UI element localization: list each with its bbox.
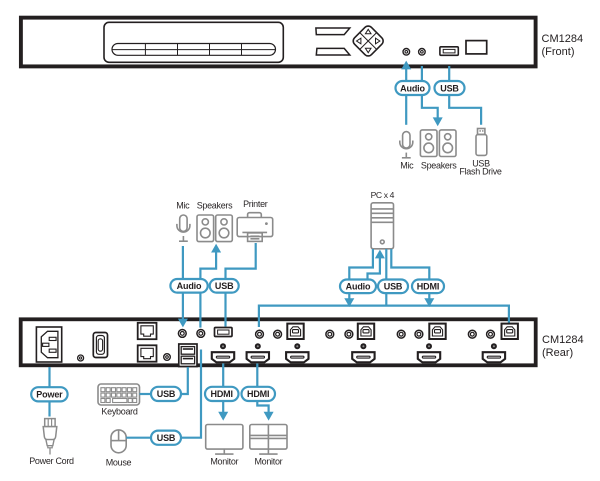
svg-text:USB: USB (384, 282, 403, 292)
svg-text:CM1284: CM1284 (542, 33, 584, 45)
svg-text:USB: USB (157, 389, 176, 399)
svg-text:HDMI: HDMI (417, 282, 439, 292)
svg-text:Speakers: Speakers (197, 200, 233, 210)
svg-text:Speakers: Speakers (421, 161, 457, 171)
svg-text:HDMI: HDMI (247, 389, 269, 399)
svg-text:USB: USB (157, 433, 176, 443)
svg-text:Printer: Printer (243, 199, 268, 209)
svg-text:(Rear): (Rear) (542, 347, 573, 359)
svg-text:Mouse: Mouse (106, 458, 132, 468)
svg-text:Monitor: Monitor (210, 456, 238, 466)
svg-text:CM1284: CM1284 (542, 334, 584, 346)
svg-text:Power: Power (36, 390, 63, 400)
svg-text:Flash Drive: Flash Drive (459, 167, 502, 177)
svg-text:USB: USB (215, 281, 234, 291)
svg-text:Audio: Audio (177, 281, 202, 291)
svg-text:Audio: Audio (346, 282, 371, 292)
svg-text:Audio: Audio (400, 83, 425, 93)
svg-text:HDMI: HDMI (210, 389, 232, 399)
svg-text:PC x 4: PC x 4 (371, 190, 395, 200)
svg-text:Mic: Mic (176, 200, 190, 210)
svg-text:Monitor: Monitor (254, 456, 282, 466)
svg-text:Keyboard: Keyboard (101, 406, 137, 416)
svg-text:Power Cord: Power Cord (29, 456, 74, 466)
svg-text:USB: USB (440, 83, 459, 93)
svg-text:Mic: Mic (400, 161, 414, 171)
svg-text:(Front): (Front) (542, 46, 575, 58)
